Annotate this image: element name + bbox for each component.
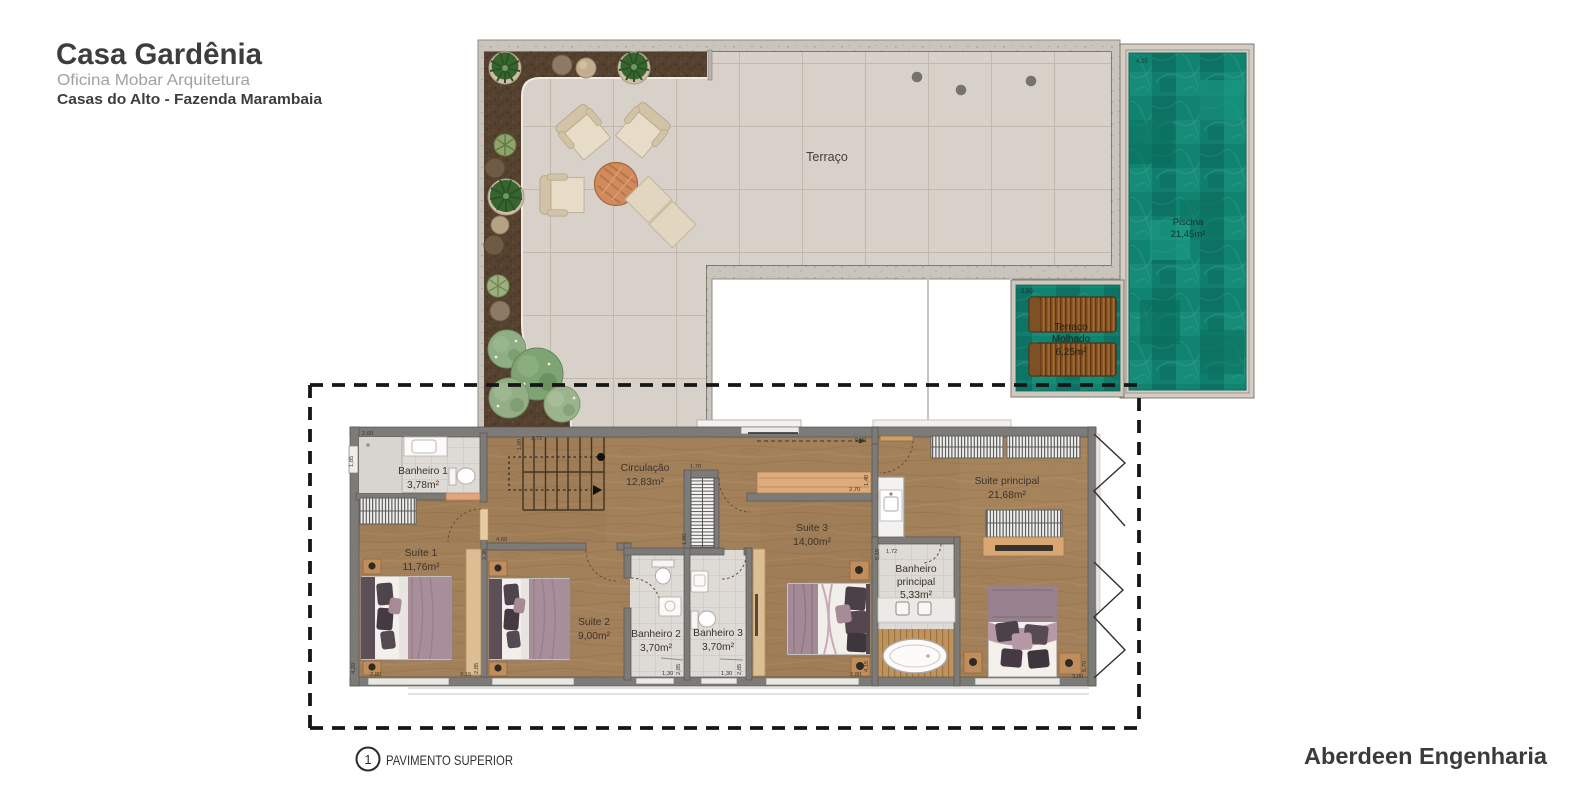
svg-text:21,68m²: 21,68m² bbox=[988, 490, 1026, 501]
svg-text:2,60: 2,60 bbox=[362, 431, 373, 437]
svg-text:Oficina Mobar Arquitetura: Oficina Mobar Arquitetura bbox=[57, 72, 250, 89]
svg-text:1: 1 bbox=[364, 752, 371, 767]
svg-text:Molhado: Molhado bbox=[1052, 334, 1091, 345]
svg-text:Terraço: Terraço bbox=[1054, 322, 1088, 333]
svg-text:1,85: 1,85 bbox=[349, 456, 355, 467]
svg-text:PAVIMENTO SUPERIOR: PAVIMENTO SUPERIOR bbox=[386, 752, 513, 768]
svg-text:4,15: 4,15 bbox=[864, 661, 870, 672]
svg-text:2,80: 2,80 bbox=[370, 672, 381, 678]
svg-text:4,60: 4,60 bbox=[496, 537, 507, 543]
svg-text:2,70: 2,70 bbox=[849, 487, 860, 493]
svg-text:9,00: 9,00 bbox=[855, 438, 866, 444]
svg-text:Casas do Alto - Fazenda Maramb: Casas do Alto - Fazenda Marambaia bbox=[57, 91, 323, 108]
svg-text:Suíte 1: Suíte 1 bbox=[405, 548, 438, 559]
svg-text:2,80: 2,80 bbox=[850, 672, 861, 678]
svg-text:2,85: 2,85 bbox=[474, 663, 480, 674]
svg-text:2,85: 2,85 bbox=[737, 664, 743, 675]
svg-text:5,70: 5,70 bbox=[1082, 661, 1088, 672]
svg-text:Banheiro 2: Banheiro 2 bbox=[631, 629, 681, 640]
svg-text:Piscina: Piscina bbox=[1173, 217, 1204, 228]
svg-text:1,40: 1,40 bbox=[864, 475, 870, 486]
svg-text:1,80: 1,80 bbox=[517, 439, 523, 450]
svg-text:1,80: 1,80 bbox=[682, 534, 688, 545]
svg-text:6,25m²: 6,25m² bbox=[1055, 347, 1087, 358]
svg-text:principal: principal bbox=[897, 577, 935, 588]
svg-text:5,33m²: 5,33m² bbox=[900, 590, 933, 601]
svg-text:1,30: 1,30 bbox=[721, 671, 732, 677]
svg-text:1,30: 1,30 bbox=[662, 671, 673, 677]
svg-text:2,85: 2,85 bbox=[676, 664, 682, 675]
svg-text:1,70: 1,70 bbox=[690, 464, 701, 470]
svg-text:21,45m²: 21,45m² bbox=[1171, 229, 1206, 240]
svg-text:1,72: 1,72 bbox=[886, 549, 897, 555]
svg-text:4,25: 4,25 bbox=[1136, 59, 1148, 65]
svg-text:3,00: 3,00 bbox=[1072, 674, 1083, 680]
svg-text:4,20: 4,20 bbox=[351, 663, 357, 674]
svg-text:Aberdeen Engenharia: Aberdeen Engenharia bbox=[1304, 743, 1548, 769]
svg-text:2,50: 2,50 bbox=[1021, 289, 1033, 295]
svg-text:3,78m²: 3,78m² bbox=[407, 480, 440, 491]
svg-text:Casa Gardênia: Casa Gardênia bbox=[56, 38, 262, 71]
svg-text:2,72: 2,72 bbox=[531, 436, 542, 442]
svg-text:12,83m²: 12,83m² bbox=[626, 477, 664, 488]
svg-text:Banheiro: Banheiro bbox=[895, 564, 936, 575]
svg-text:2,30: 2,30 bbox=[482, 549, 488, 560]
svg-text:14,00m²: 14,00m² bbox=[793, 537, 831, 548]
svg-text:Suite 2: Suite 2 bbox=[578, 617, 610, 628]
svg-text:Banheiro 3: Banheiro 3 bbox=[693, 628, 743, 639]
svg-text:Suite principal: Suite principal bbox=[975, 476, 1040, 487]
svg-text:3,70m²: 3,70m² bbox=[702, 642, 735, 653]
svg-text:3,70m²: 3,70m² bbox=[640, 643, 673, 654]
svg-text:Terraço: Terraço bbox=[806, 150, 848, 164]
svg-text:11,76m²: 11,76m² bbox=[402, 562, 440, 573]
svg-text:Circulação: Circulação bbox=[621, 463, 670, 474]
svg-text:3,15: 3,15 bbox=[460, 672, 471, 678]
svg-text:5,10: 5,10 bbox=[875, 549, 881, 560]
svg-text:Suite 3: Suite 3 bbox=[796, 523, 828, 534]
svg-text:Banheiro 1: Banheiro 1 bbox=[398, 466, 448, 477]
svg-text:9,00m²: 9,00m² bbox=[578, 631, 611, 642]
